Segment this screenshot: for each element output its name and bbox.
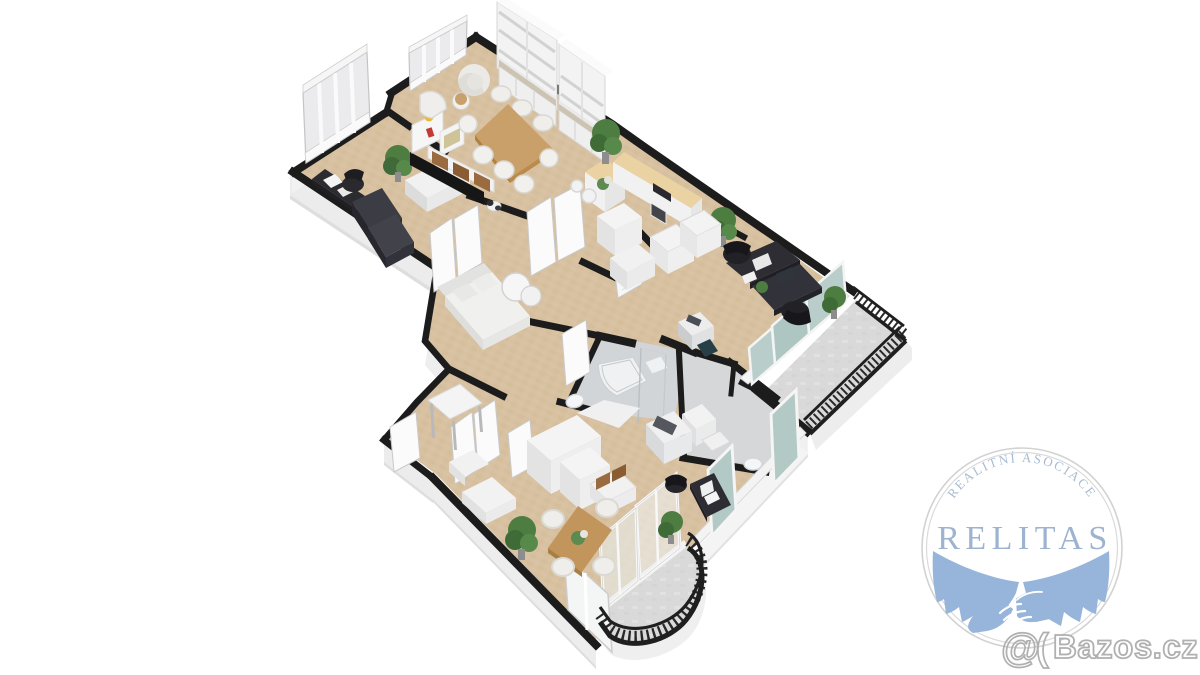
svg-text:Bazos.cz: Bazos.cz [1053, 628, 1198, 665]
svg-text:@: @ [1001, 626, 1040, 670]
svg-text:(: ( [1036, 627, 1049, 669]
svg-text:RELITAS: RELITAS [937, 520, 1113, 557]
